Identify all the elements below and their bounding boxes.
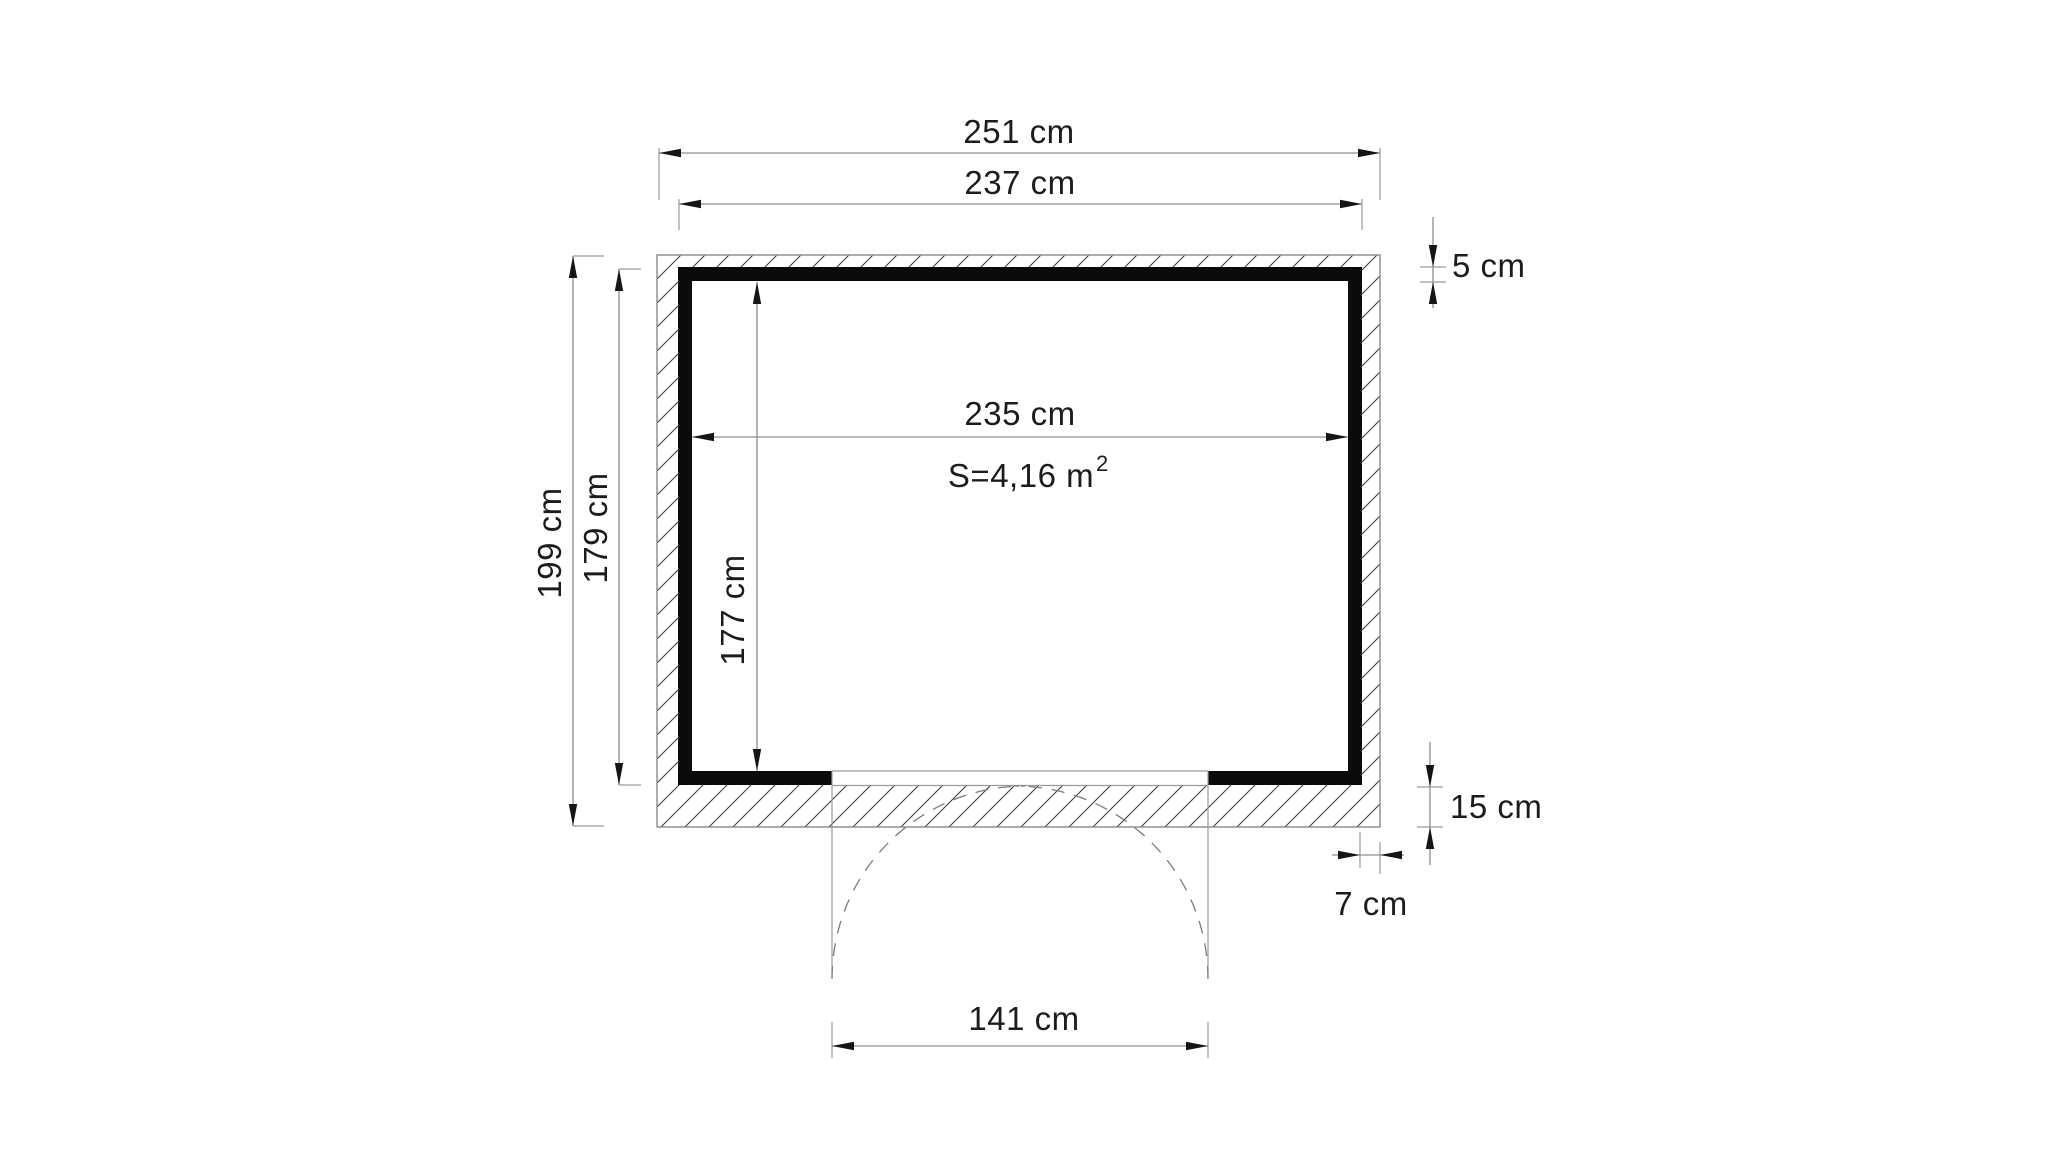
floor-plan-page: 251 cm 237 cm 199 cm 179 cm 235 cm S=4,1 [0,0,2048,1152]
floor-plan-drawing: 251 cm 237 cm 199 cm 179 cm 235 cm S=4,1 [0,0,2048,1152]
dim-label-inner-depth: 177 cm [714,554,751,665]
dim-door-width: 141 cm [832,1000,1208,1058]
dim-label-wall-offset: 7 cm [1334,885,1408,922]
dim-frame-width: 237 cm [679,164,1362,230]
dim-frame-depth: 179 cm [577,269,641,785]
room-interior [692,281,1348,771]
area-label-superscript: 2 [1096,451,1109,476]
dim-label-frame-width: 237 cm [964,164,1075,201]
dim-label-door-width: 141 cm [968,1000,1079,1037]
dim-wall-offset: 7 cm [1332,832,1408,922]
area-label: S=4,16 m [948,457,1094,494]
dim-label-outer-width: 251 cm [963,113,1074,150]
dim-base-thickness: 15 cm [1417,742,1542,865]
dim-label-outer-depth: 199 cm [531,487,568,598]
door-threshold [832,770,1208,786]
area-label-group: S=4,16 m 2 [948,451,1109,494]
dim-label-wall-liner-thickness: 5 cm [1452,247,1526,284]
dim-wall-liner-thickness: 5 cm [1420,217,1526,308]
dim-label-frame-depth: 179 cm [577,472,614,583]
dim-label-base-thickness: 15 cm [1450,788,1542,825]
dim-label-inner-width: 235 cm [964,395,1075,432]
